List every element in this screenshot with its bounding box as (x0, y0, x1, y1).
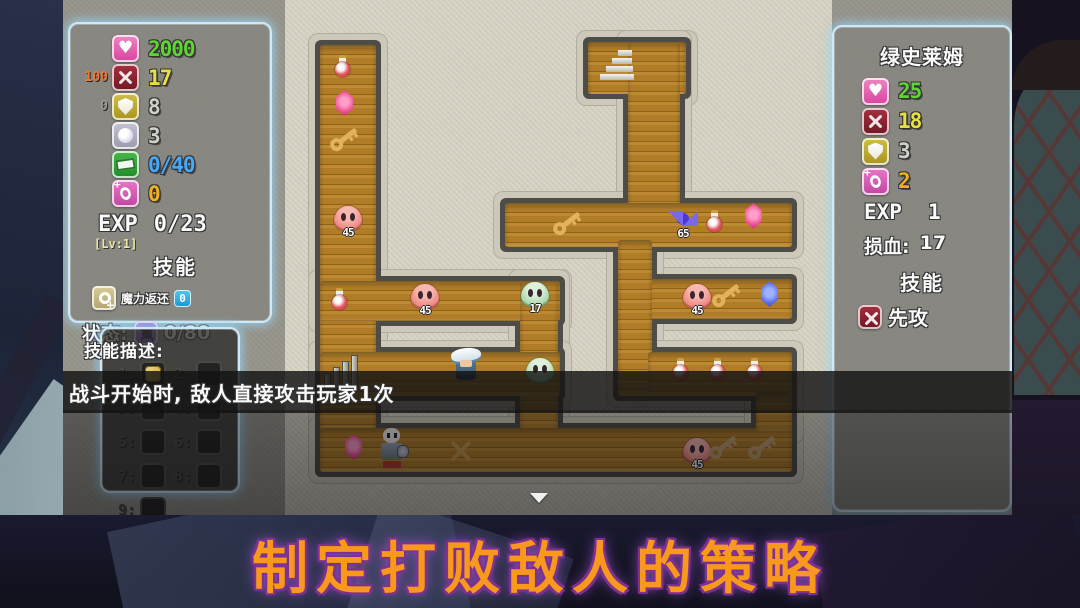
skill-count-badge: 0 (174, 290, 191, 307)
enemy-attack-row: 18 (862, 106, 1010, 136)
stairs-up[interactable] (600, 50, 636, 80)
scroll-down-arrow[interactable] (530, 493, 548, 503)
defense-row: 0 8 (80, 92, 270, 121)
enemy-damage-row: 损血: 17 (864, 232, 1010, 259)
pink-slime-enemy[interactable]: 45 (334, 206, 362, 231)
attack-row: 100 17 (80, 63, 270, 92)
message-text: 战斗开始时, 敌人直接攻击玩家1次 (69, 378, 394, 407)
enemy-hp-row: 25 (862, 76, 1010, 106)
skill-mana-refund[interactable]: 魔力返还 0 (92, 286, 270, 310)
enemy-name: 绿史莱姆 (834, 41, 1010, 70)
enemy-defense-row: 3 (862, 136, 1010, 166)
bat-enemy[interactable]: 65 (668, 208, 698, 232)
enemy-coin-row: 2 (862, 166, 1010, 196)
shield-icon (862, 138, 889, 165)
exp-row: EXP 0/23 (98, 212, 270, 237)
gold-skill-icon (92, 286, 116, 310)
orb-row: 3 (80, 121, 270, 150)
coin-row: 0 (80, 179, 270, 208)
heart-icon (112, 35, 139, 62)
hp-row: 2000 (80, 34, 270, 63)
enemy-exp-row: EXP 1 (864, 200, 1010, 224)
attack-icon (858, 305, 882, 329)
orb-icon (112, 122, 139, 149)
enemy-skills-title: 技能 (834, 267, 1010, 296)
enemy-skill-first-strike: 先攻 (858, 302, 1010, 331)
game-screen: 45 65 45 17 45 45 2000 (0, 0, 1080, 608)
attack-icon (862, 108, 889, 135)
skills-title: 技能 (80, 251, 270, 280)
pink-slime-enemy[interactable]: 45 (411, 284, 439, 309)
green-slime-enemy[interactable]: 17 (521, 282, 549, 307)
red-potion-item[interactable] (707, 210, 722, 232)
game-viewport: 45 65 45 17 45 45 2000 (63, 0, 1012, 515)
stained-glass-window (1014, 55, 1080, 395)
shield-icon (112, 93, 139, 120)
heart-icon (862, 78, 889, 105)
red-potion-item[interactable] (332, 288, 347, 310)
tutorial-caption: 制定打败敌人的策略 (0, 524, 1080, 605)
skill-description-title: 技能描述: (84, 337, 164, 362)
red-potion-item[interactable] (335, 55, 350, 77)
message-bar: 战斗开始时, 敌人直接攻击玩家1次 (63, 371, 1012, 413)
money-row: 0/40 (80, 150, 270, 179)
coin-icon (862, 168, 889, 195)
money-icon (112, 151, 139, 178)
level-label: [Lv:1] (94, 237, 270, 251)
attack-icon (112, 64, 139, 91)
player-stats-panel: 2000 100 17 0 8 3 0/40 (68, 22, 272, 323)
coin-icon (112, 180, 139, 207)
